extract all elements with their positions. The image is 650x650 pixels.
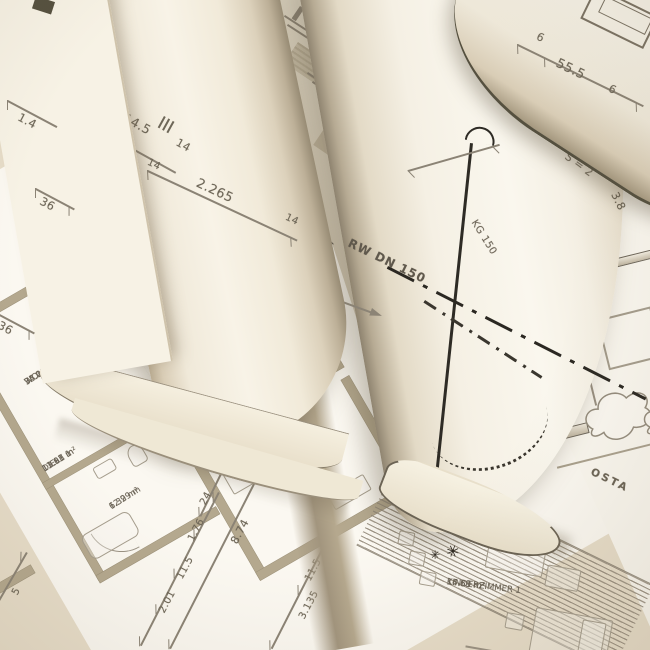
floorplan-right-group: KINDERZIMMER 1 14.69 m² 15.53 m bbox=[374, 540, 650, 650]
room-perimeter: 15.53 m bbox=[446, 577, 482, 593]
wardrobe bbox=[408, 550, 426, 567]
bathtub bbox=[79, 509, 141, 561]
sink bbox=[92, 458, 118, 480]
blueprint-photo: WOHNZIMMER 34.01 m² 35.28 m DIELE 1 11.8… bbox=[0, 0, 650, 650]
wardrobe bbox=[419, 570, 437, 587]
dimension-text: 5 bbox=[10, 586, 23, 597]
wardrobe bbox=[397, 530, 415, 547]
tree-symbol-icon: ✳ bbox=[430, 549, 440, 561]
room-perimeter: 12.29 m bbox=[107, 485, 143, 513]
nightstand bbox=[504, 612, 525, 631]
cabinet bbox=[544, 564, 581, 592]
